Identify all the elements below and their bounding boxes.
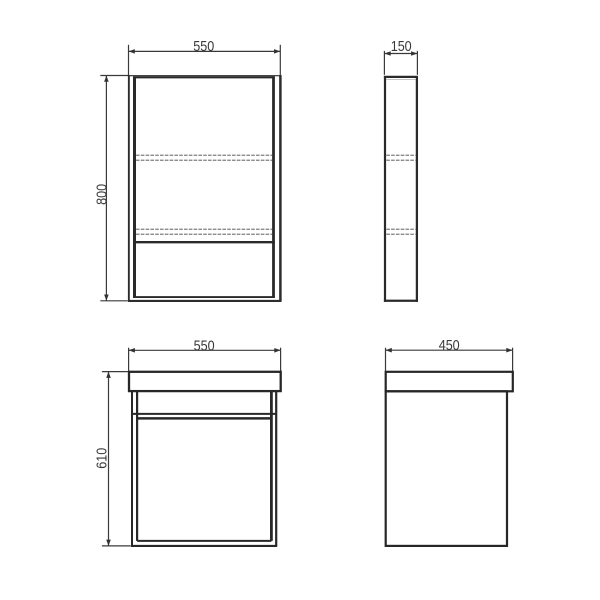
svg-text:610: 610	[94, 448, 111, 469]
svg-text:150: 150	[391, 38, 412, 55]
svg-text:800: 800	[94, 184, 111, 205]
svg-text:450: 450	[439, 337, 460, 354]
svg-text:550: 550	[193, 38, 214, 55]
svg-text:550: 550	[194, 337, 215, 354]
